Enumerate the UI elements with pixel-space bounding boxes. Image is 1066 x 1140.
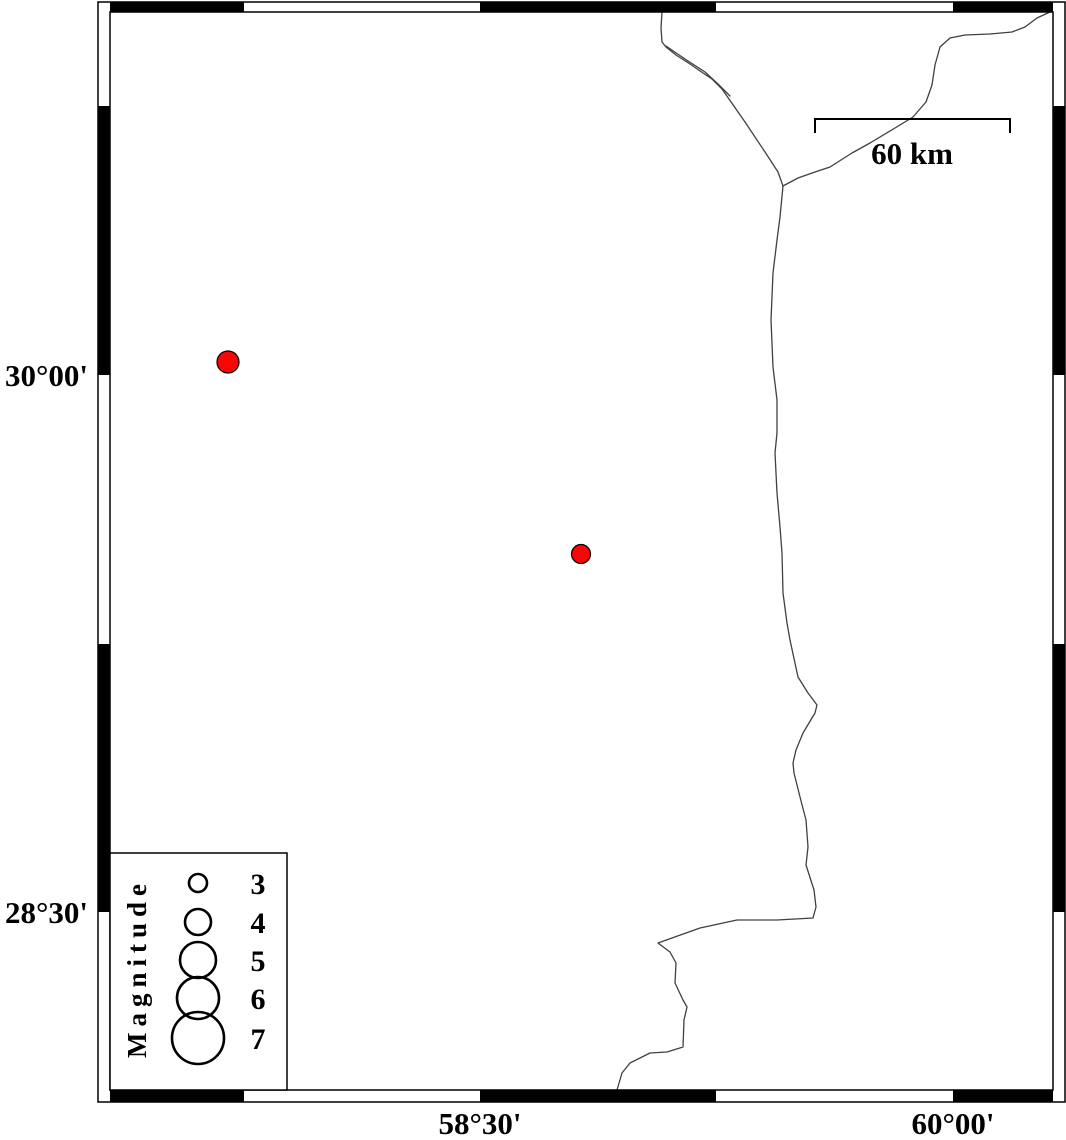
frame-black-segment-bottom bbox=[480, 1090, 716, 1102]
legend-label-mag-4: 4 bbox=[251, 907, 266, 940]
magnitude-legend: Magnitude 34567 bbox=[110, 853, 287, 1090]
frame-black-segment-right bbox=[1053, 644, 1065, 912]
frame-black-segment-top bbox=[953, 2, 1053, 12]
frame-black-segment-left bbox=[98, 106, 110, 375]
legend-label-mag-5: 5 bbox=[251, 945, 266, 978]
bottom-axis-label-60-00: 60°00' bbox=[911, 1106, 994, 1140]
frame-black-segment-bottom bbox=[953, 1090, 1053, 1102]
left-axis-label-28-30: 28°30' bbox=[5, 895, 88, 930]
seismicity-map: 30°00' 28°30' 58°30' 60°00' 60 km Magnit… bbox=[0, 0, 1066, 1140]
legend-label-mag-7: 7 bbox=[251, 1023, 266, 1056]
left-axis-label-30-00: 30°00' bbox=[5, 358, 88, 393]
frame-black-segment-top bbox=[480, 2, 716, 12]
bottom-axis-label-58-30: 58°30' bbox=[438, 1106, 521, 1140]
frame-black-segment-left bbox=[98, 644, 110, 912]
legend-title: Magnitude bbox=[122, 878, 152, 1058]
frame-black-segment-top bbox=[110, 2, 244, 12]
legend-label-mag-6: 6 bbox=[251, 983, 266, 1016]
scale-bar-label: 60 km bbox=[871, 136, 953, 171]
frame-black-segment-bottom bbox=[110, 1090, 244, 1102]
epicenter-dot bbox=[217, 351, 239, 373]
legend-label-mag-3: 3 bbox=[251, 868, 266, 901]
epicenter-dot bbox=[572, 545, 591, 564]
frame-black-segment-right bbox=[1053, 106, 1065, 375]
